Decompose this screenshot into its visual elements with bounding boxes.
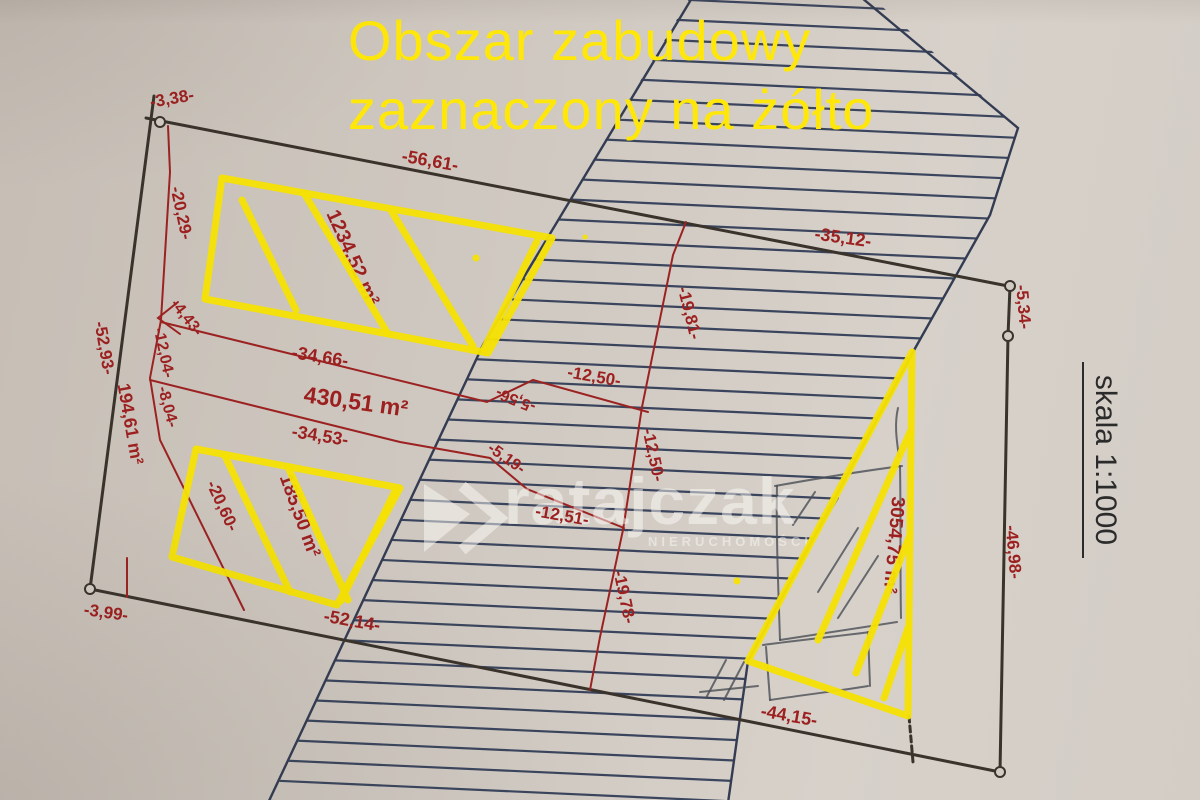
scale-label: skala 1:1000 (1082, 362, 1122, 558)
scanned-survey-map: ratajczak NIERUCHOMOŚCI -3,38--56,61--35… (0, 0, 1200, 800)
highlight-region-south-west (172, 449, 400, 605)
stray-yellow-dot (583, 235, 588, 240)
map-annotation-title: Obszar zabudowy zaznaczony na żółto (348, 6, 874, 145)
stray-yellow-dot (473, 255, 480, 262)
map-annotation-line2: zaznaczony na żółto (348, 75, 874, 144)
stray-yellow-dot (734, 578, 741, 585)
map-annotation-line1: Obszar zabudowy (348, 6, 874, 75)
highlight-region-east (748, 352, 912, 716)
highlight-region-north (205, 178, 552, 353)
